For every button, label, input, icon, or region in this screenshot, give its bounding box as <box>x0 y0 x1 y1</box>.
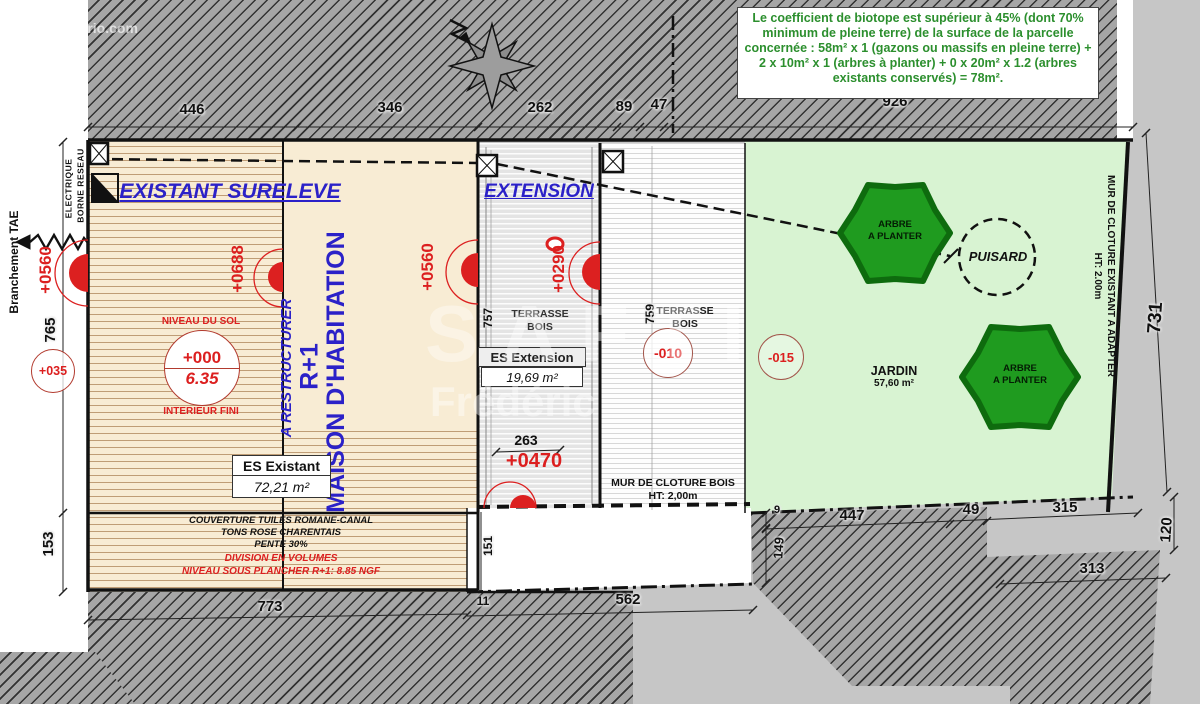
interieur-fini-label: INTERIEUR FINI <box>152 406 250 417</box>
top-right-white-strip <box>1117 0 1133 140</box>
south-white-strip <box>467 508 751 592</box>
neighbor-bottom-right-hatch <box>748 495 1168 704</box>
es-existant-title: ES Existant <box>243 458 320 474</box>
jardin-title: JARDIN <box>856 364 932 378</box>
r-plus-1-label: R+1 <box>296 337 323 397</box>
dim-9: 9 <box>768 505 786 517</box>
dim-731: 731 <box>1144 287 1172 349</box>
terrasse-2-line1: TERRASSE <box>640 305 730 318</box>
level-minus010: -010 <box>654 345 682 361</box>
level-plus0560-left: +0560 <box>36 234 56 306</box>
dim-89: 89 <box>606 99 642 115</box>
borne-reseau-label: BORNE RESEAU <box>76 130 87 242</box>
es-extension-area: 19,69 m² <box>506 370 557 385</box>
terrasse-bois-1: TERRASSE BOIS <box>495 308 585 333</box>
arbre-1-line2: A PLANTER <box>856 231 934 243</box>
division-volumes-label: DIVISION EN VOLUMES <box>166 553 396 564</box>
level-plus0560b: +0560 <box>418 231 438 303</box>
dim-346: 346 <box>360 100 420 116</box>
niveau-du-sol-label: NIVEAU DU SOL <box>155 316 247 327</box>
es-extension-area-box: 19,69 m² <box>481 367 583 387</box>
level-035: +035 <box>39 364 67 378</box>
niveau-plancher-label: NIVEAU SOUS PLANCHER R+1: 8.85 NGF <box>136 566 426 577</box>
dim-120: 120 <box>1157 499 1179 560</box>
a-restructurer-label: A RESTRUCTURER <box>278 283 296 453</box>
terrasse-1-line2: BOIS <box>495 321 585 334</box>
dim-262: 262 <box>510 100 570 116</box>
dim-562: 562 <box>598 592 658 608</box>
terrasse-bois-2: TERRASSE BOIS <box>640 305 730 330</box>
arbre-2-line1: ARBRE <box>981 363 1059 375</box>
level-plus0688: +0688 <box>228 233 248 305</box>
jardin-area: 57,60 m² <box>856 378 932 389</box>
es-extension-title-box: ES Extension <box>478 347 586 367</box>
dim-757: 757 <box>482 298 496 338</box>
mur-bois-line2: HT: 2,00m <box>608 490 738 503</box>
neighbor-bottom-left-hatch <box>88 592 633 704</box>
mur-existant-label: MUR DE CLOTURE EXISTANT A ADAPTER HT: 2.… <box>1090 141 1116 411</box>
dim-263: 263 <box>498 433 554 448</box>
dim-315: 315 <box>1040 500 1090 516</box>
mur-cloture-bois-label: MUR DE CLOTURE BOIS HT: 2,00m <box>608 477 738 503</box>
garden-zone <box>745 141 1135 513</box>
biotope-note: Le coefficient de biotope est supérieur … <box>737 7 1099 99</box>
puisard-label: PUISARD <box>959 249 1037 264</box>
dim-446: 446 <box>162 102 222 118</box>
level-circle-015: -015 <box>758 334 804 380</box>
es-existant-area-box: 72,21 m² <box>232 475 331 498</box>
level-circle-035: +035 <box>31 349 75 393</box>
biotope-note-text: Le coefficient de biotope est supérieur … <box>745 11 1092 85</box>
mur-existant-line1: MUR DE CLOTURE EXISTANT A ADAPTER <box>1104 141 1117 411</box>
level-minus015: -015 <box>768 350 794 365</box>
dim-773: 773 <box>240 599 300 615</box>
level-circle-010: -010 <box>643 328 693 378</box>
roof-line1: COUVERTURE TUILES ROMANE-CANAL <box>166 515 396 527</box>
existant-sureleve-title: EXISTANT SURELEVE <box>105 180 355 204</box>
roof-text-block: COUVERTURE TUILES ROMANE-CANAL TONS ROSE… <box>166 515 396 551</box>
level-ngf: 6.35 <box>165 368 239 389</box>
dim-313: 313 <box>1068 561 1116 577</box>
arbre-2-line2: A PLANTER <box>981 375 1059 387</box>
roof-line3: PENTE 30% <box>166 539 396 551</box>
dim-11: 11 <box>470 595 496 608</box>
arbre-2-label: ARBRE A PLANTER <box>981 363 1059 388</box>
es-existant-title-box: ES Existant <box>232 455 331 477</box>
extension-title: EXTENSION <box>478 181 600 203</box>
roof-line2: TONS ROSE CHARENTAIS <box>166 527 396 539</box>
electrique-label: ELECTRIQUE <box>64 133 75 245</box>
site-plan-canvas: Le coefficient de biotope est supérieur … <box>0 0 1200 704</box>
dim-447: 447 <box>826 508 878 524</box>
dim-153: 153 <box>41 514 59 574</box>
level-circle-000: +000 6.35 <box>164 330 240 406</box>
branchement-tae-label: Branchement TAE <box>7 201 23 323</box>
dim-151: 151 <box>482 526 496 566</box>
level-plus0290: +0290 <box>549 233 569 305</box>
terrasse-1-line1: TERRASSE <box>495 308 585 321</box>
mur-bois-line1: MUR DE CLOTURE BOIS <box>608 477 738 490</box>
es-existant-area: 72,21 m² <box>254 479 309 495</box>
dim-49: 49 <box>956 502 986 518</box>
jardin-label: JARDIN 57,60 m² <box>856 364 932 389</box>
dim-47: 47 <box>642 97 676 113</box>
terrasse-2-line2: BOIS <box>640 318 730 331</box>
es-extension-title: ES Extension <box>490 350 573 365</box>
level-plus0470: +0470 <box>496 450 572 473</box>
mur-existant-line2: HT: 2.00m <box>1091 141 1104 411</box>
arbre-1-label: ARBRE A PLANTER <box>856 219 934 244</box>
level-000: +000 <box>183 348 221 368</box>
arbre-1-line1: ARBRE <box>856 219 934 231</box>
